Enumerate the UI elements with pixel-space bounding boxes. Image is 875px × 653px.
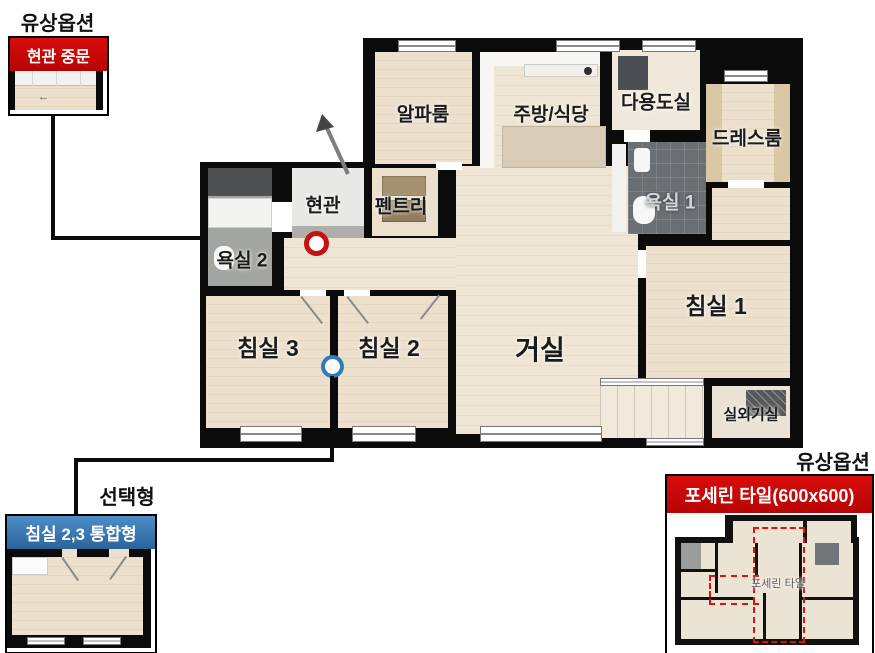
tile-option-miniplan: 포세린 타일 <box>667 513 868 650</box>
door-bedroom3 <box>300 290 326 296</box>
dining-table <box>502 126 606 168</box>
washer-icon <box>618 56 648 90</box>
tile-option-card[interactable]: 포세린 타일(600x600) 포세린 타일 <box>665 474 874 653</box>
connector-merge-vertical1 <box>330 376 334 462</box>
door-bathroom2 <box>272 202 292 232</box>
room-label-alpha: 알파룸 <box>397 100 449 127</box>
window-balcony-top <box>600 378 704 386</box>
photo-wall-top <box>129 549 143 557</box>
room-label-bathroom1: 욕실 1 <box>645 188 696 215</box>
window-dressroom <box>724 70 768 82</box>
connector-merge-horizontal <box>74 458 334 462</box>
window-utility <box>642 40 696 52</box>
photo-door-swing <box>61 557 79 581</box>
door-dressroom <box>728 180 764 188</box>
mini-bath1 <box>815 543 839 565</box>
photo-arrow-icon: ← <box>38 91 49 103</box>
window-kitchen <box>556 40 620 52</box>
room-label-outdoor-unit: 실외기실 <box>723 404 778 425</box>
bath1-vanity <box>612 144 626 232</box>
entry-direction-arrow-icon <box>308 108 360 180</box>
entrance-door-option-marker[interactable] <box>304 231 329 256</box>
tile-area-label: 포세린 타일 <box>723 575 833 591</box>
photo-door-swing <box>109 556 127 580</box>
photo-window <box>27 637 65 645</box>
bedroom-merge-option-marker[interactable] <box>321 355 344 378</box>
room-label-bedroom2: 침실 2 <box>358 329 420 363</box>
photo-wall-left <box>10 71 15 110</box>
entrance-option-card[interactable]: 현관 중문 ← <box>8 36 109 116</box>
photo-door-seam <box>56 71 57 86</box>
mini-wall <box>681 569 715 572</box>
merge-option-photo <box>7 549 151 648</box>
photo-door-seam <box>80 71 81 86</box>
room-label-bedroom3: 침실 3 <box>237 329 299 363</box>
bath2-cabinet <box>208 168 272 196</box>
photo-wall-top <box>77 549 109 557</box>
room-label-utility: 다용도실 <box>621 88 691 115</box>
photo-closet <box>12 557 48 575</box>
photo-wall-top <box>12 549 62 557</box>
entrance-option-tag: 유상옵션 <box>8 7 107 36</box>
room-label-kitchen: 주방/식당 <box>513 100 588 127</box>
entrance-option-photo: ← <box>10 71 103 110</box>
mini-bath2 <box>681 543 701 569</box>
cooktop-icon <box>584 67 592 75</box>
mini-wall <box>799 597 855 600</box>
connector-entrance-vertical <box>51 110 55 240</box>
merge-option-card[interactable]: 침실 2,3 통합형 <box>5 514 157 653</box>
entrance-option-title: 현관 중문 <box>10 38 107 71</box>
sink-icon <box>634 148 650 172</box>
bedroom1-entry-floor <box>712 188 790 240</box>
mini-rooms-upper <box>807 521 851 545</box>
room-label-entrance: 현관 <box>306 191 341 218</box>
room-label-dressroom: 드레스룸 <box>712 124 782 151</box>
merge-option-tag: 선택형 <box>72 481 182 510</box>
room-label-bedroom1: 침실 1 <box>685 287 747 321</box>
photo-wall-right <box>96 71 103 110</box>
entrance-step <box>292 226 364 238</box>
door-utility <box>624 130 650 142</box>
window-living <box>480 426 602 442</box>
photo-door-seam <box>32 71 33 86</box>
room-label-bathroom2: 욕실 2 <box>217 246 268 273</box>
window-alpha <box>398 40 456 52</box>
photo-wall-right <box>143 549 151 648</box>
bathtub-icon <box>208 198 272 228</box>
merge-option-title: 침실 2,3 통합형 <box>7 516 155 549</box>
photo-window <box>83 637 121 645</box>
window-balcony-bottom <box>646 438 704 446</box>
tile-option-title: 포세린 타일(600x600) <box>667 476 872 513</box>
room-label-pantry: 펜트리 <box>375 192 427 219</box>
balcony-floor <box>600 386 704 438</box>
window-bedroom3 <box>240 426 302 442</box>
window-bedroom2 <box>352 426 416 442</box>
floor-plan-page: 알파룸 주방/식당 다용도실 드레스룸 욕실 1 현관 펜트리 욕실 2 침실 … <box>0 0 875 653</box>
door-bedroom1 <box>638 250 646 278</box>
connector-entrance-horizontal <box>51 236 203 240</box>
door-alpha <box>436 162 462 170</box>
room-label-living: 거실 <box>515 329 565 368</box>
tile-option-tag: 유상옵션 <box>796 446 870 475</box>
